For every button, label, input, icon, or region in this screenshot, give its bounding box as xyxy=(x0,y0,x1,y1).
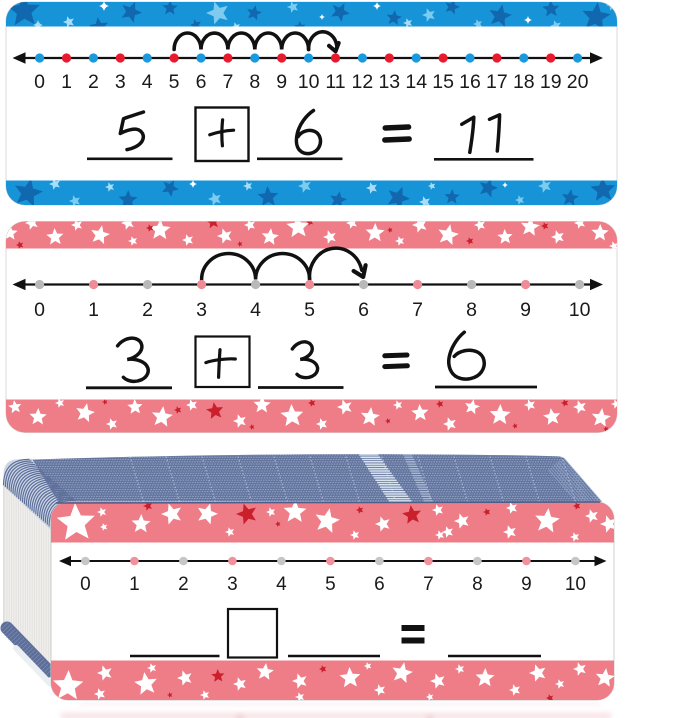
svg-text:20: 20 xyxy=(567,71,589,93)
svg-text:14: 14 xyxy=(405,71,427,93)
svg-text:1: 1 xyxy=(61,71,72,93)
svg-text:5: 5 xyxy=(304,299,315,321)
svg-text:3: 3 xyxy=(227,574,238,595)
svg-text:9: 9 xyxy=(520,299,531,321)
svg-text:6: 6 xyxy=(196,71,207,93)
svg-text:8: 8 xyxy=(472,574,483,595)
svg-text:9: 9 xyxy=(276,71,287,93)
svg-text:17: 17 xyxy=(486,71,508,93)
svg-text:8: 8 xyxy=(466,299,477,321)
svg-text:18: 18 xyxy=(513,71,535,93)
svg-text:5: 5 xyxy=(169,71,180,93)
svg-text:6: 6 xyxy=(374,574,385,595)
svg-text:10: 10 xyxy=(565,574,586,595)
svg-text:7: 7 xyxy=(412,299,423,321)
svg-text:1: 1 xyxy=(88,299,99,321)
svg-text:3: 3 xyxy=(115,71,126,93)
svg-text:19: 19 xyxy=(540,71,562,93)
svg-text:4: 4 xyxy=(142,71,153,93)
svg-text:11: 11 xyxy=(325,71,345,93)
svg-text:15: 15 xyxy=(432,71,454,93)
svg-text:7: 7 xyxy=(423,574,434,595)
svg-text:12: 12 xyxy=(352,71,374,93)
svg-text:13: 13 xyxy=(378,71,400,93)
svg-text:1: 1 xyxy=(129,574,140,595)
svg-text:8: 8 xyxy=(249,71,260,93)
svg-text:2: 2 xyxy=(178,574,189,595)
svg-text:0: 0 xyxy=(34,299,45,321)
svg-text:0: 0 xyxy=(34,71,45,93)
svg-text:2: 2 xyxy=(142,299,153,321)
svg-text:9: 9 xyxy=(521,574,532,595)
svg-text:7: 7 xyxy=(222,71,233,93)
svg-text:10: 10 xyxy=(298,71,320,93)
svg-text:6: 6 xyxy=(358,299,369,321)
svg-text:5: 5 xyxy=(325,574,336,595)
svg-text:10: 10 xyxy=(569,299,591,321)
svg-text:4: 4 xyxy=(250,299,261,321)
svg-text:4: 4 xyxy=(276,574,287,595)
svg-text:3: 3 xyxy=(196,299,207,321)
svg-text:0: 0 xyxy=(80,574,91,595)
svg-text:2: 2 xyxy=(88,71,99,93)
svg-text:16: 16 xyxy=(459,71,481,93)
